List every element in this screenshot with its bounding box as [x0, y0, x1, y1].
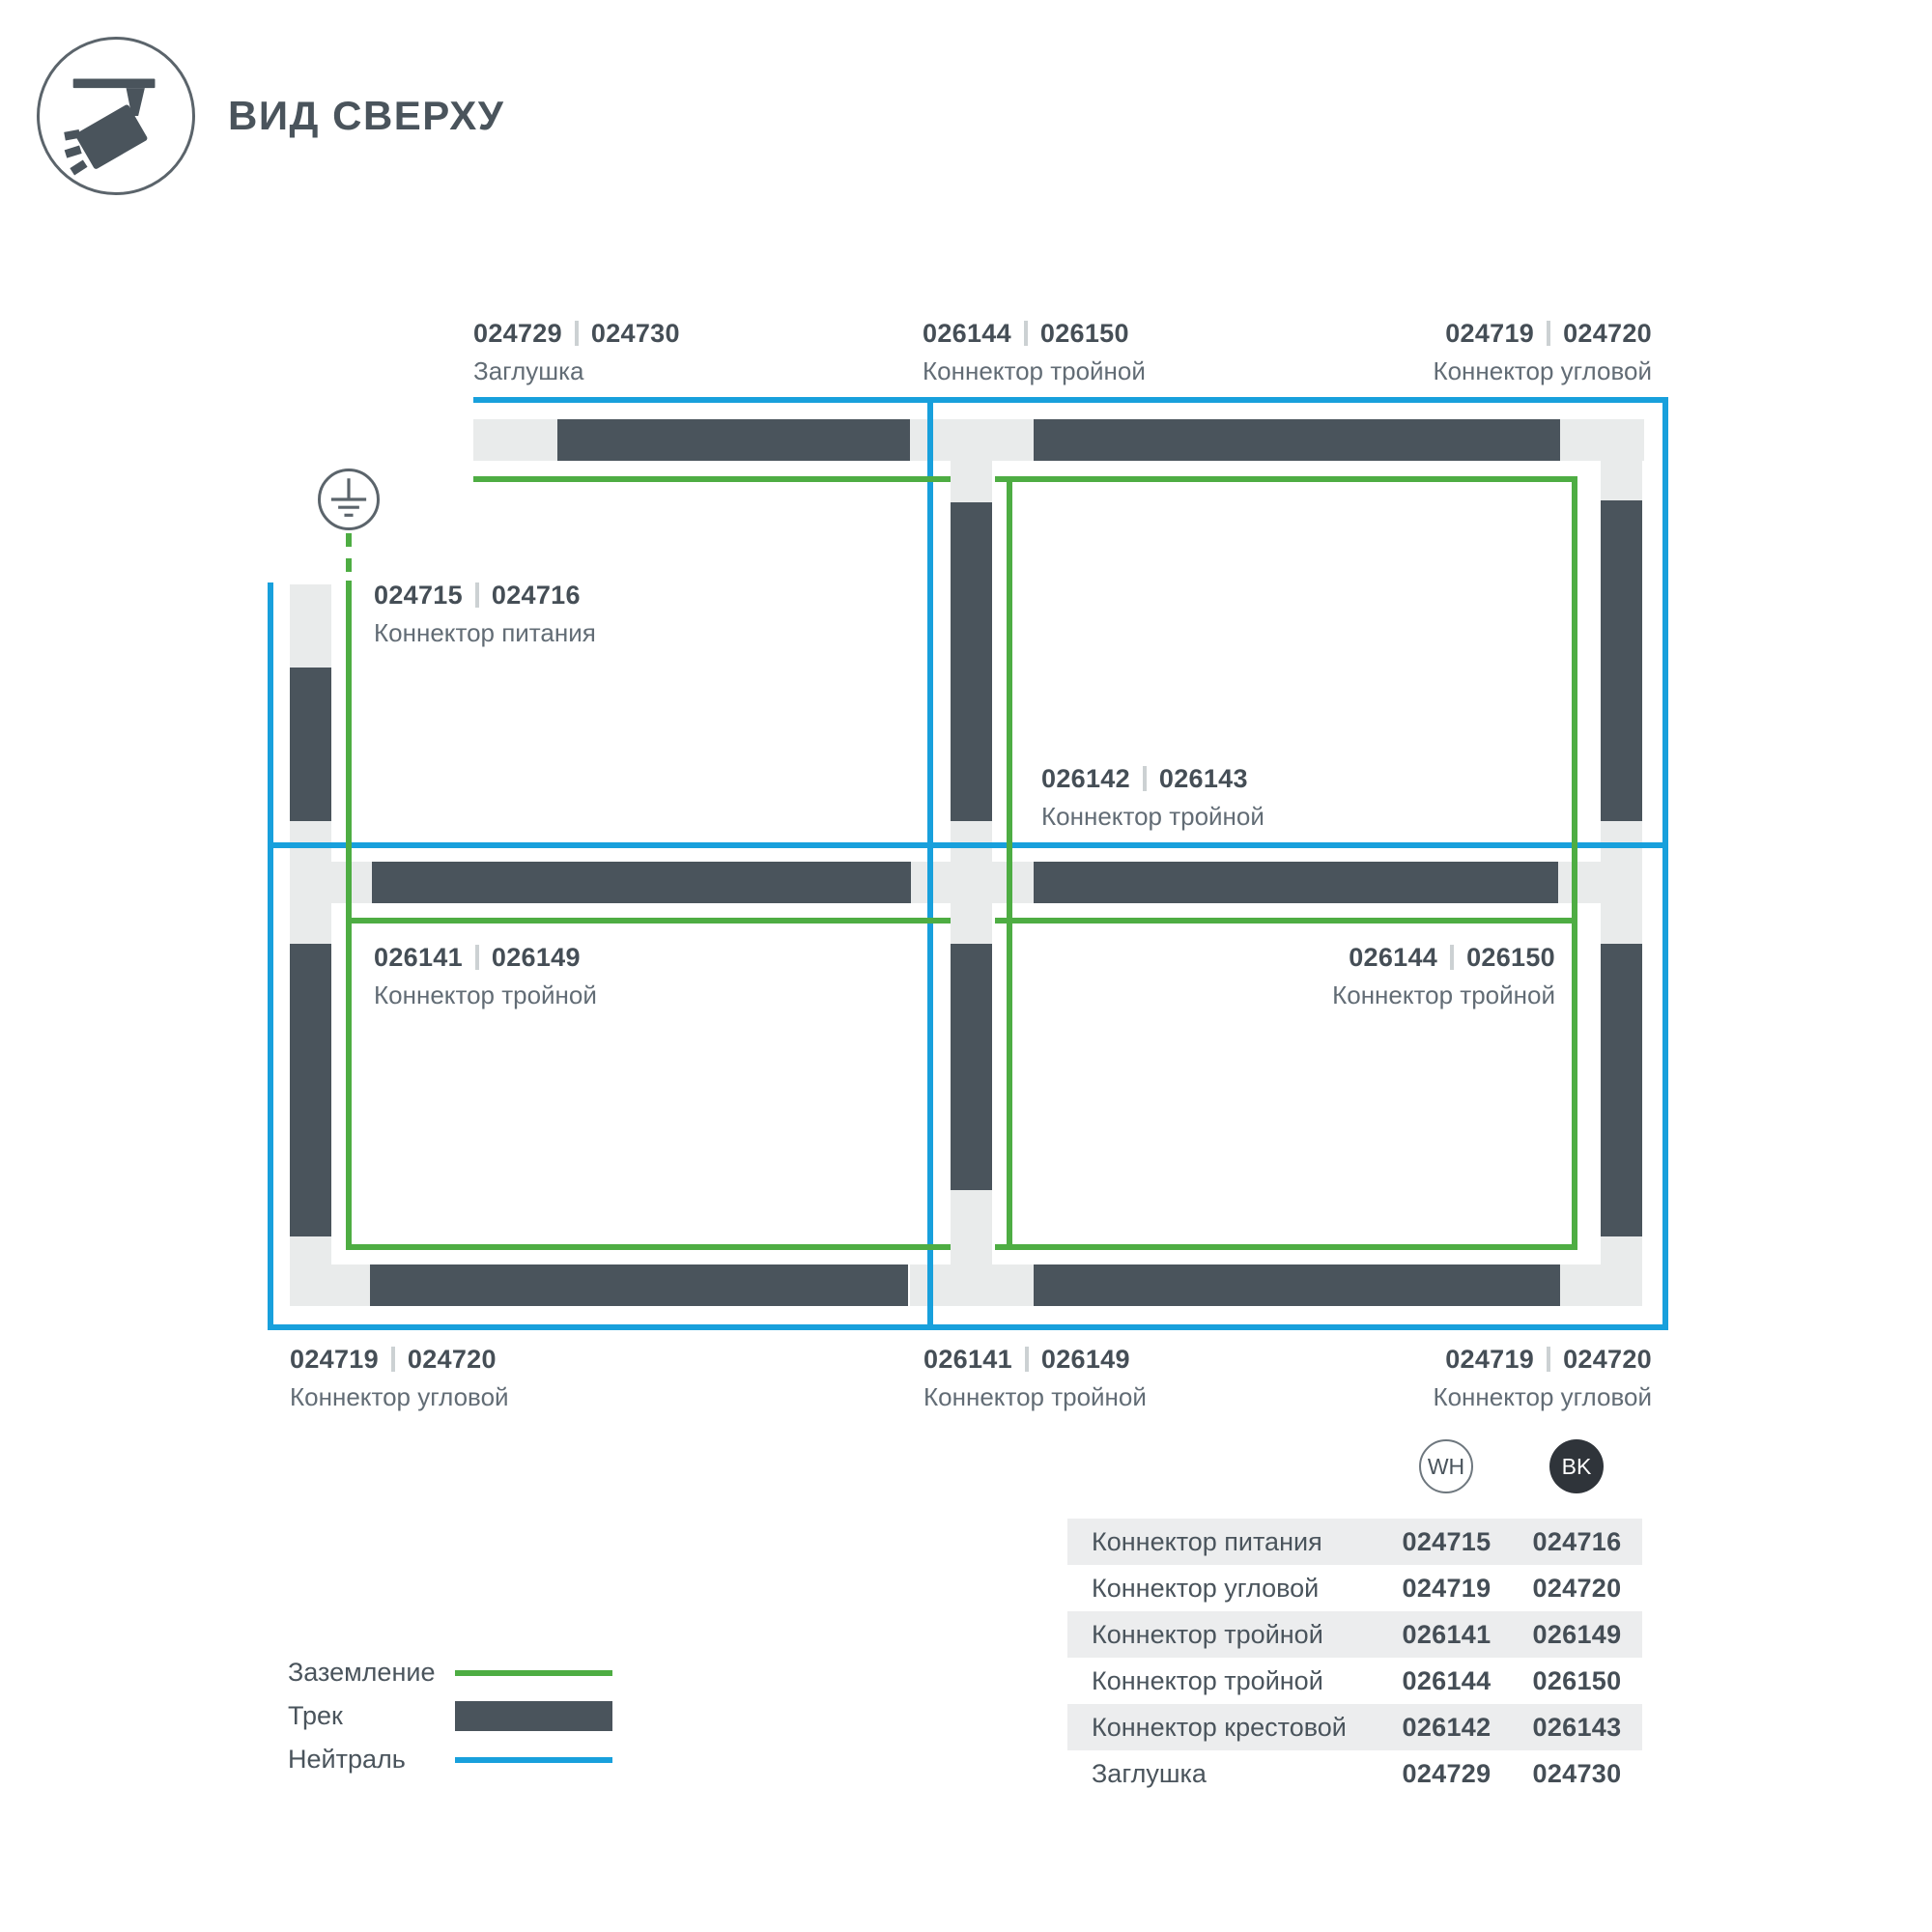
code-bk: 026149 [492, 943, 581, 972]
neutral-line [927, 397, 933, 1330]
connector-power [290, 584, 331, 668]
part-codes: 026141026149 [923, 1345, 1147, 1375]
ground-line [473, 476, 951, 482]
part-codes: 026144026150 [923, 319, 1146, 349]
code-bk: 026143 [1159, 764, 1248, 793]
code-wh: 024719 [1445, 319, 1534, 348]
track-swatch [455, 1701, 612, 1731]
part-name: Коннектор тройной [1041, 802, 1264, 832]
ground-line [995, 918, 1577, 923]
divider [475, 582, 479, 608]
connector-t-left-arm [331, 862, 372, 903]
code-bk: 024720 [408, 1345, 497, 1374]
track-segment [1034, 419, 1560, 461]
track-segment [1034, 1264, 1560, 1306]
divider [1547, 321, 1550, 346]
connector-t-right-arm [1601, 821, 1642, 944]
part-codes: 024729024730 [473, 319, 680, 349]
code-bk: 024720 [1563, 319, 1652, 348]
earth-icon [321, 471, 377, 527]
code-wh: 024729 [1381, 1759, 1512, 1789]
ground-line [346, 1244, 951, 1250]
part-name: Коннектор тройной [374, 980, 597, 1010]
legend-item-ground: Заземление [288, 1651, 612, 1694]
ground-line [1572, 476, 1577, 1250]
legend-item-track: Трек [288, 1694, 612, 1738]
part-name: Заглушка [1067, 1759, 1381, 1789]
color-badge-wh: WH [1419, 1439, 1473, 1493]
code-wh: 026144 [1381, 1666, 1512, 1696]
table-row: Заглушка 024729 024730 [1067, 1750, 1642, 1797]
color-badge-bk: BK [1549, 1439, 1604, 1493]
part-name: Коннектор тройной [1067, 1620, 1381, 1650]
part-name: Коннектор питания [374, 618, 596, 648]
divider [1450, 945, 1454, 970]
code-wh: 026144 [1349, 943, 1437, 972]
divider [475, 945, 479, 970]
neutral-line [1662, 397, 1668, 1330]
legend-item-neutral: Нейтраль [288, 1738, 612, 1781]
part-name: Коннектор тройной [923, 356, 1146, 386]
neutral-line [268, 582, 273, 1330]
code-wh: 026142 [1041, 764, 1130, 793]
code-bk: 024730 [591, 319, 680, 348]
code-bk: 024716 [1512, 1527, 1642, 1557]
part-name: Коннектор угловой [1433, 356, 1652, 386]
track-segment [1034, 862, 1558, 903]
parts-table: Коннектор питания 024715 024716 Коннекто… [1067, 1519, 1642, 1797]
connector-t-top-arm [951, 461, 992, 502]
divider [391, 1347, 395, 1372]
code-wh: 024715 [374, 581, 463, 610]
track-segment [372, 862, 911, 903]
neutral-line [473, 397, 1668, 403]
track-segment [951, 944, 992, 1190]
code-wh: 026144 [923, 319, 1011, 348]
part-name: Коннектор тройной [1332, 980, 1555, 1010]
track-light-icon [40, 40, 192, 192]
code-bk: 026150 [1040, 319, 1129, 348]
connector-corner-top-right-arm [1601, 461, 1642, 500]
track-segment [1601, 500, 1642, 821]
track-segment [370, 1264, 908, 1306]
connector-corner-bottom-right-arm [1560, 1264, 1601, 1306]
code-wh: 024719 [1445, 1345, 1534, 1374]
label-corner-top-right: 024719024720 Коннектор угловой [1433, 319, 1652, 386]
connector-corner-bottom-right [1601, 1236, 1642, 1306]
table-row: Коннектор угловой 024719 024720 [1067, 1565, 1642, 1611]
connector-t-bottom-arm [951, 1190, 992, 1264]
ground-symbol [318, 469, 380, 530]
part-name: Коннектор тройной [1067, 1666, 1381, 1696]
code-wh: 024729 [473, 319, 562, 348]
ground-line [346, 918, 951, 923]
part-codes: 024719024720 [290, 1345, 509, 1375]
label-corner-bottom-right: 024719024720 Коннектор угловой [1433, 1345, 1652, 1412]
legend-label: Нейтраль [288, 1745, 406, 1775]
part-name: Коннектор тройной [923, 1382, 1147, 1412]
ground-line-dashed [346, 533, 352, 581]
divider [1025, 1347, 1029, 1372]
ground-line [995, 476, 1577, 482]
legend-label: Заземление [288, 1658, 435, 1688]
code-wh: 026142 [1381, 1713, 1512, 1743]
label-corner-bottom-left: 024719024720 Коннектор угловой [290, 1345, 509, 1412]
label-t-bottom: 026141026149 Коннектор тройной [923, 1345, 1147, 1412]
neutral-swatch [455, 1757, 612, 1763]
track-segment [951, 502, 992, 821]
label-t-top: 026144026150 Коннектор тройной [923, 319, 1146, 386]
track-segment [1601, 944, 1642, 1236]
ground-line [346, 581, 352, 1250]
part-name: Коннектор угловой [290, 1382, 509, 1412]
part-name: Коннектор угловой [1067, 1574, 1381, 1604]
code-bk: 026149 [1512, 1620, 1642, 1650]
label-cross-connector: 026142026143 Коннектор тройной [1041, 764, 1264, 832]
part-name: Коннектор крестовой [1067, 1713, 1381, 1743]
track-segment [557, 419, 910, 461]
code-wh: 024719 [290, 1345, 379, 1374]
code-bk: 026150 [1512, 1666, 1642, 1696]
connector-corner-bottom-left [290, 1236, 331, 1306]
page: ВИД СВЕРХУ [0, 0, 1932, 1932]
divider [1024, 321, 1028, 346]
neutral-line [268, 1324, 1668, 1330]
code-bk: 024720 [1512, 1574, 1642, 1604]
code-wh: 026141 [374, 943, 463, 972]
table-row: Коннектор тройной 026144 026150 [1067, 1658, 1642, 1704]
code-wh: 024715 [1381, 1527, 1512, 1557]
code-bk: 026149 [1041, 1345, 1130, 1374]
badge-label: WH [1428, 1454, 1464, 1480]
label-t-right: 026144026150 Коннектор тройной [1332, 943, 1555, 1010]
ground-swatch [455, 1670, 612, 1676]
connector-corner-top-right [1560, 419, 1644, 461]
code-bk: 026143 [1512, 1713, 1642, 1743]
connector-t-left [290, 821, 331, 944]
part-name: Заглушка [473, 356, 680, 386]
code-wh: 026141 [1381, 1620, 1512, 1650]
connector-corner-bottom-left-arm [331, 1264, 370, 1306]
ground-line [995, 1244, 1577, 1250]
label-power-connector: 024715024716 Коннектор питания [374, 581, 596, 648]
code-bk: 026150 [1466, 943, 1555, 972]
track-segment [290, 944, 331, 1236]
divider [1547, 1347, 1550, 1372]
part-codes: 024719024720 [1433, 1345, 1652, 1375]
part-codes: 026141026149 [374, 943, 597, 973]
divider [575, 321, 579, 346]
page-title: ВИД СВЕРХУ [228, 93, 504, 139]
part-codes: 026144026150 [1332, 943, 1555, 973]
part-codes: 026142026143 [1041, 764, 1264, 794]
table-row: Коннектор питания 024715 024716 [1067, 1519, 1642, 1565]
label-t-left: 026141026149 Коннектор тройной [374, 943, 597, 1010]
part-name: Коннектор питания [1067, 1527, 1381, 1557]
code-wh: 024719 [1381, 1574, 1512, 1604]
divider [1143, 766, 1147, 791]
ground-line [1007, 476, 1012, 1250]
neutral-line [268, 842, 1668, 848]
top-view-badge [37, 37, 195, 195]
code-bk: 024716 [492, 581, 581, 610]
part-codes: 024719024720 [1433, 319, 1652, 349]
connector-endcap [473, 419, 557, 461]
label-endcap: 024729024730 Заглушка [473, 319, 680, 386]
connector-cross-arm [951, 821, 992, 944]
code-wh: 026141 [923, 1345, 1012, 1374]
badge-label: BK [1562, 1454, 1592, 1480]
code-bk: 024730 [1512, 1759, 1642, 1789]
table-row: Коннектор тройной 026141 026149 [1067, 1611, 1642, 1658]
legend-label: Трек [288, 1701, 343, 1731]
track-segment [290, 668, 331, 821]
part-codes: 024715024716 [374, 581, 596, 611]
code-bk: 024720 [1563, 1345, 1652, 1374]
part-name: Коннектор угловой [1433, 1382, 1652, 1412]
table-row: Коннектор крестовой 026142 026143 [1067, 1704, 1642, 1750]
